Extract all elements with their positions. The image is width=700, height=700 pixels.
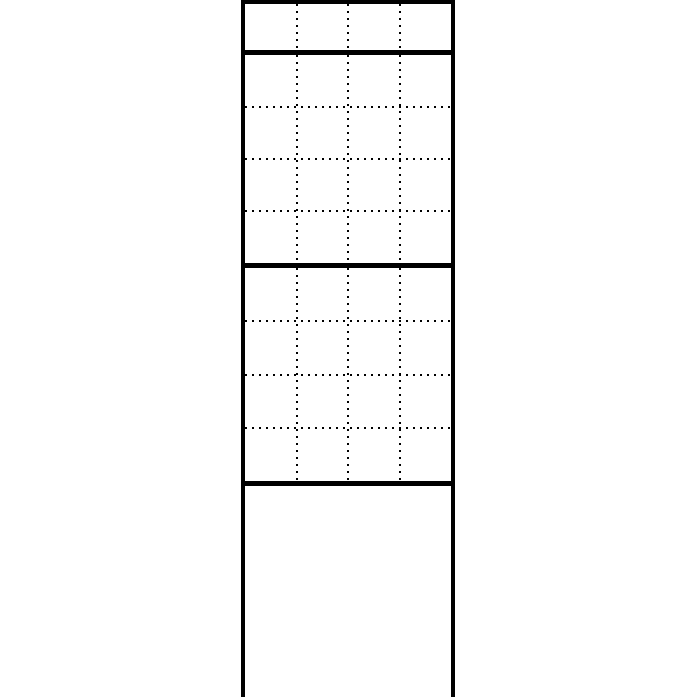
dotted-grid-line-vertical xyxy=(399,268,401,481)
dotted-grid-line-vertical xyxy=(399,4,401,50)
dotted-grid-line-horizontal xyxy=(245,210,451,212)
lower-module-grid xyxy=(241,268,455,486)
top-module-row xyxy=(241,0,455,55)
dotted-grid-line-vertical xyxy=(347,4,349,50)
dotted-grid-line-horizontal xyxy=(245,320,451,322)
dotted-grid-line-horizontal xyxy=(245,427,451,429)
dotted-grid-line-horizontal xyxy=(245,158,451,160)
dotted-grid-line-vertical xyxy=(296,4,298,50)
dotted-grid-line-vertical xyxy=(296,268,298,481)
upper-module-grid xyxy=(241,55,455,268)
dotted-grid-line-vertical xyxy=(347,268,349,481)
dotted-grid-line-vertical xyxy=(296,55,298,263)
dotted-grid-line-vertical xyxy=(399,55,401,263)
dotted-grid-line-horizontal xyxy=(245,106,451,108)
drawing-canvas xyxy=(0,0,700,700)
dotted-grid-line-vertical xyxy=(347,55,349,263)
dotted-grid-line-horizontal xyxy=(245,374,451,376)
post-base xyxy=(241,486,455,697)
